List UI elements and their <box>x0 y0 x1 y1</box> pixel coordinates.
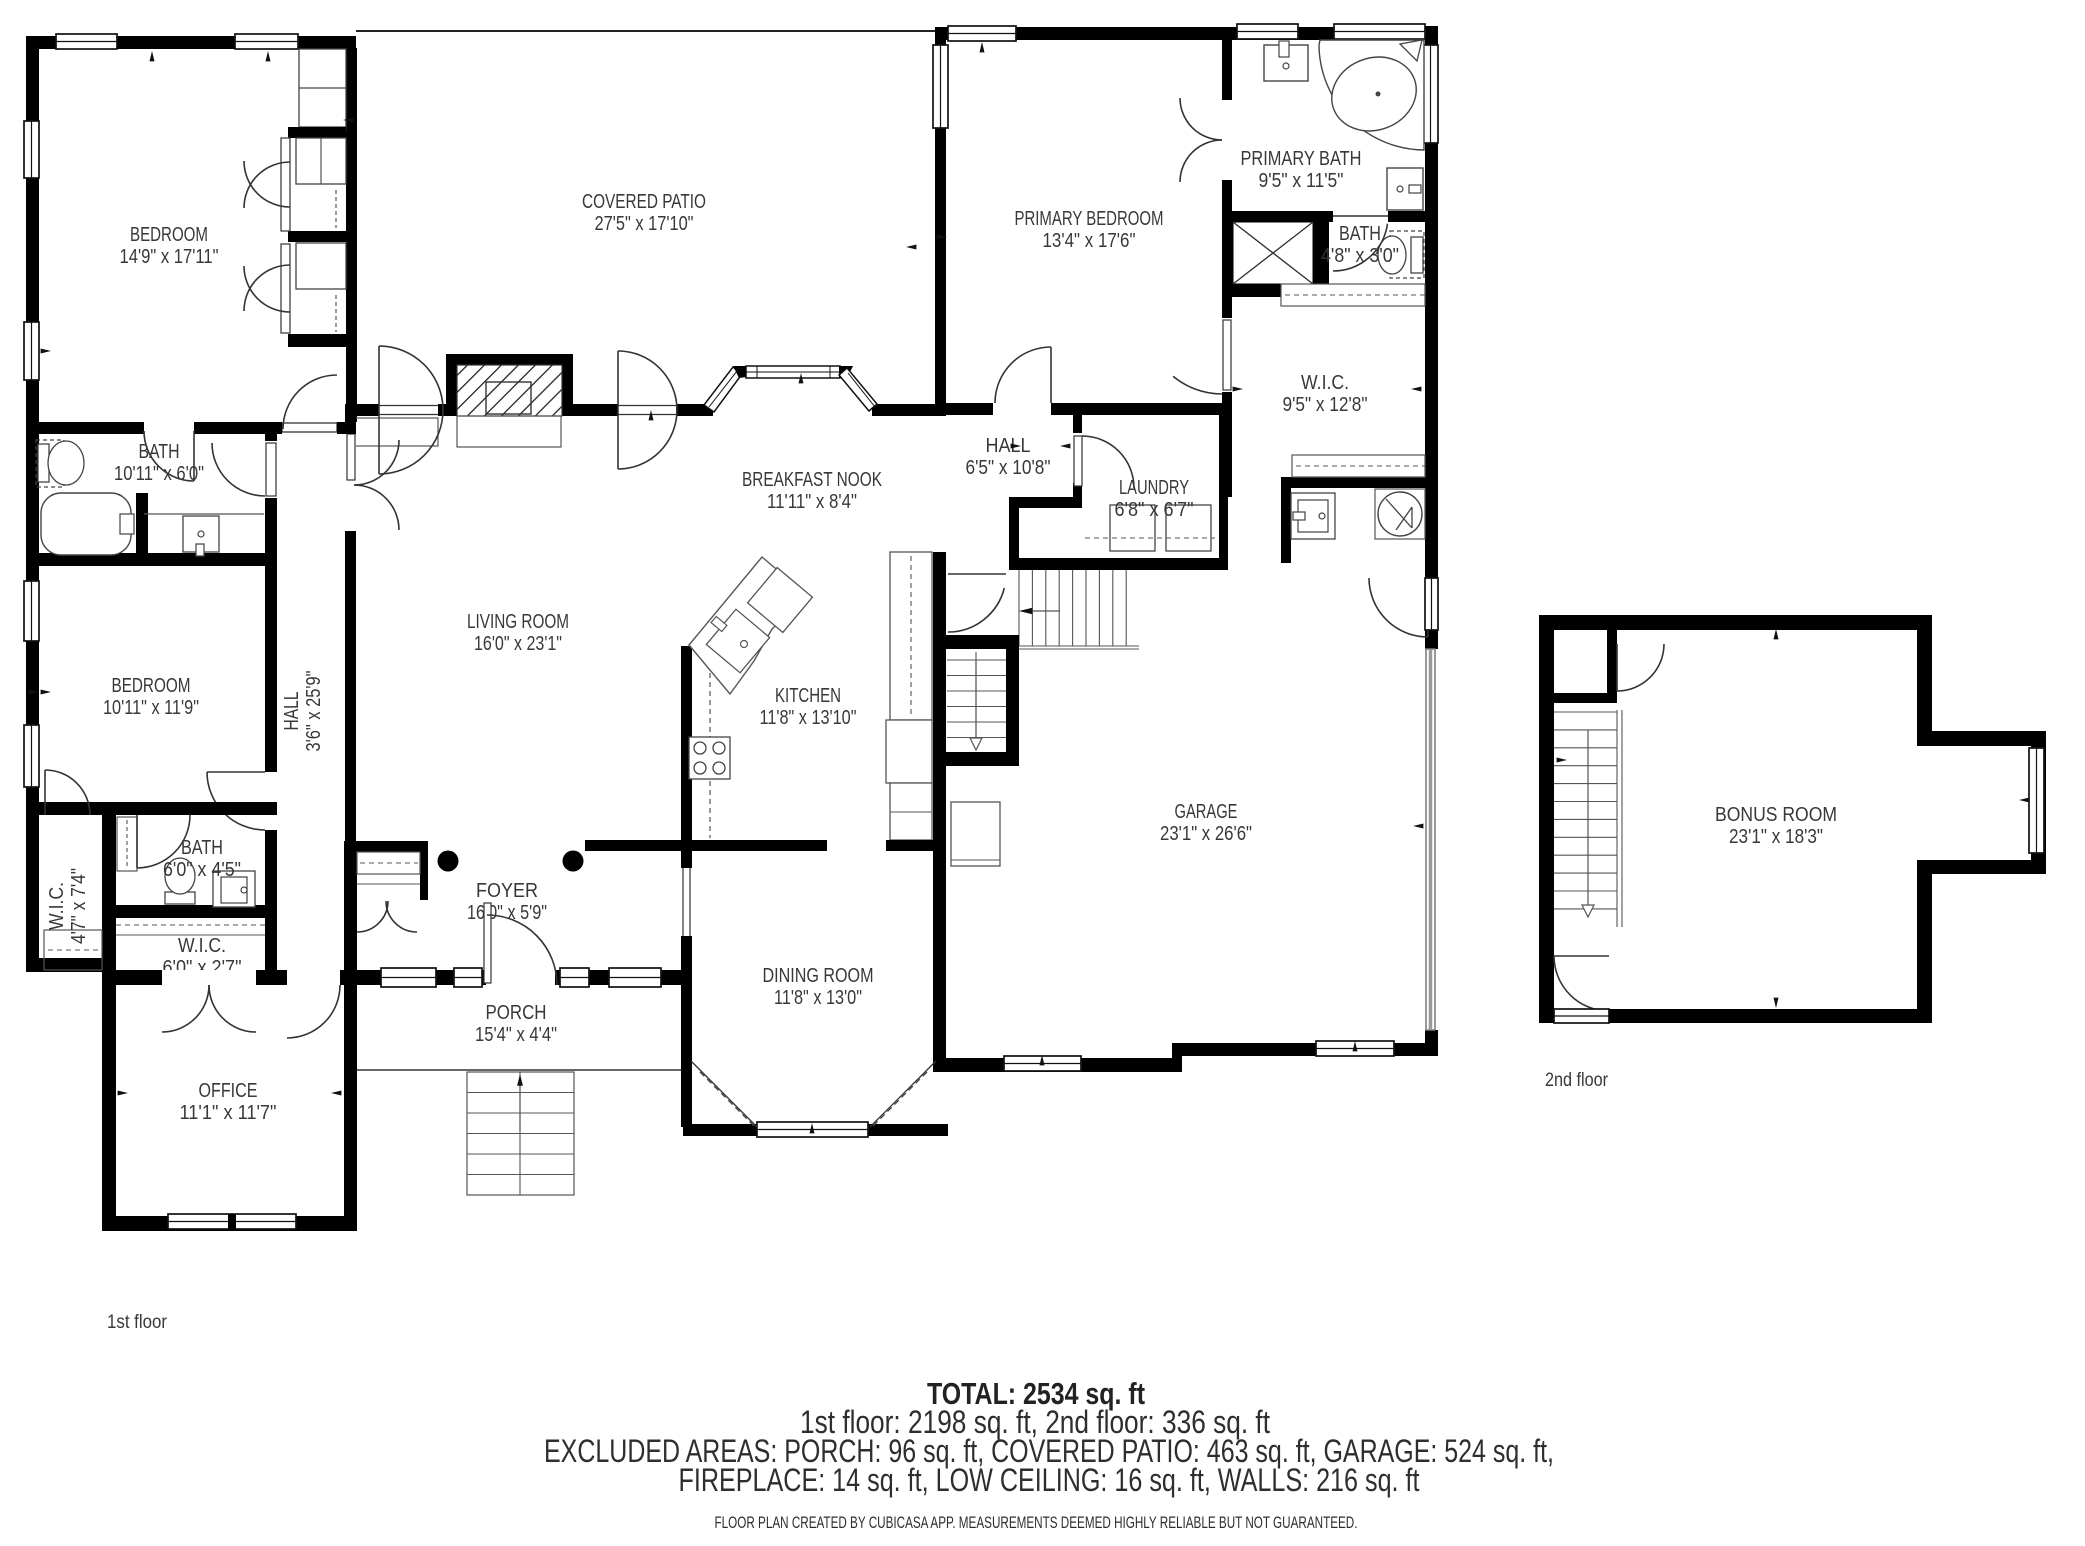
svg-text:BATH: BATH <box>139 441 180 463</box>
svg-text:23'1" x 26'6": 23'1" x 26'6" <box>1160 823 1252 845</box>
svg-text:2nd floor: 2nd floor <box>1545 1070 1609 1091</box>
svg-text:W.I.C.: W.I.C. <box>178 935 226 957</box>
svg-text:PORCH: PORCH <box>486 1002 547 1024</box>
svg-text:HALL: HALL <box>986 435 1031 457</box>
svg-text:OFFICE: OFFICE <box>199 1080 258 1102</box>
svg-text:16'0" x 23'1": 16'0" x 23'1" <box>474 633 562 655</box>
svg-text:10'11" x 6'0": 10'11" x 6'0" <box>114 463 204 485</box>
svg-text:15'4" x 4'4": 15'4" x 4'4" <box>475 1024 557 1046</box>
svg-text:PRIMARY BEDROOM: PRIMARY BEDROOM <box>1015 208 1164 230</box>
svg-text:11'11" x 8'4": 11'11" x 8'4" <box>767 491 857 513</box>
svg-text:10'11" x 11'9": 10'11" x 11'9" <box>103 697 199 719</box>
svg-text:COVERED PATIO: COVERED PATIO <box>582 191 706 213</box>
svg-text:BATH: BATH <box>1339 223 1381 245</box>
svg-text:27'5" x 17'10": 27'5" x 17'10" <box>595 213 694 235</box>
svg-text:9'5" x 12'8": 9'5" x 12'8" <box>1283 394 1368 416</box>
svg-text:14'9" x 17'11": 14'9" x 17'11" <box>120 246 219 268</box>
svg-text:1st floor: 1st floor <box>107 1312 168 1333</box>
svg-text:4'8" x 3'0": 4'8" x 3'0" <box>1321 245 1399 267</box>
svg-text:16'0" x 5'9": 16'0" x 5'9" <box>467 902 547 924</box>
svg-text:LIVING ROOM: LIVING ROOM <box>467 611 569 633</box>
svg-text:DINING ROOM: DINING ROOM <box>763 965 874 987</box>
svg-text:HALL: HALL <box>281 692 303 731</box>
svg-text:BREAKFAST NOOK: BREAKFAST NOOK <box>742 469 883 491</box>
svg-text:FLOOR PLAN CREATED BY CUBICASA: FLOOR PLAN CREATED BY CUBICASA APP. MEAS… <box>715 1514 1358 1532</box>
svg-text:3'6" x 25'9": 3'6" x 25'9" <box>303 671 325 752</box>
svg-text:GARAGE: GARAGE <box>1175 801 1238 823</box>
svg-text:9'5" x 11'5": 9'5" x 11'5" <box>1259 170 1344 192</box>
svg-text:FOYER: FOYER <box>476 880 538 902</box>
svg-text:W.I.C.: W.I.C. <box>1301 372 1349 394</box>
svg-text:23'1" x 18'3": 23'1" x 18'3" <box>1729 826 1823 848</box>
svg-text:KITCHEN: KITCHEN <box>775 685 841 707</box>
svg-text:11'1" x 11'7": 11'1" x 11'7" <box>180 1102 277 1124</box>
svg-text:FIREPLACE: 14 sq. ft, LOW CEIL: FIREPLACE: 14 sq. ft, LOW CEILING: 16 sq… <box>679 1462 1420 1498</box>
svg-text:BONUS ROOM: BONUS ROOM <box>1715 804 1837 826</box>
svg-text:LAUNDRY: LAUNDRY <box>1119 477 1189 499</box>
svg-text:W.I.C.: W.I.C. <box>46 882 68 930</box>
svg-text:BEDROOM: BEDROOM <box>112 675 191 697</box>
svg-text:6'8" x 6'7": 6'8" x 6'7" <box>1115 499 1194 521</box>
svg-text:4'7" x 7'4": 4'7" x 7'4" <box>68 868 90 944</box>
svg-text:BEDROOM: BEDROOM <box>130 224 208 246</box>
svg-text:6'0" x 4'5": 6'0" x 4'5" <box>163 859 241 881</box>
svg-text:BATH: BATH <box>181 837 223 859</box>
svg-text:13'4" x 17'6": 13'4" x 17'6" <box>1043 230 1136 252</box>
svg-text:PRIMARY BATH: PRIMARY BATH <box>1241 148 1362 170</box>
svg-text:11'8" x 13'10": 11'8" x 13'10" <box>760 707 857 729</box>
svg-text:11'8" x 13'0": 11'8" x 13'0" <box>774 987 862 1009</box>
svg-text:6'5" x 10'8": 6'5" x 10'8" <box>966 457 1051 479</box>
